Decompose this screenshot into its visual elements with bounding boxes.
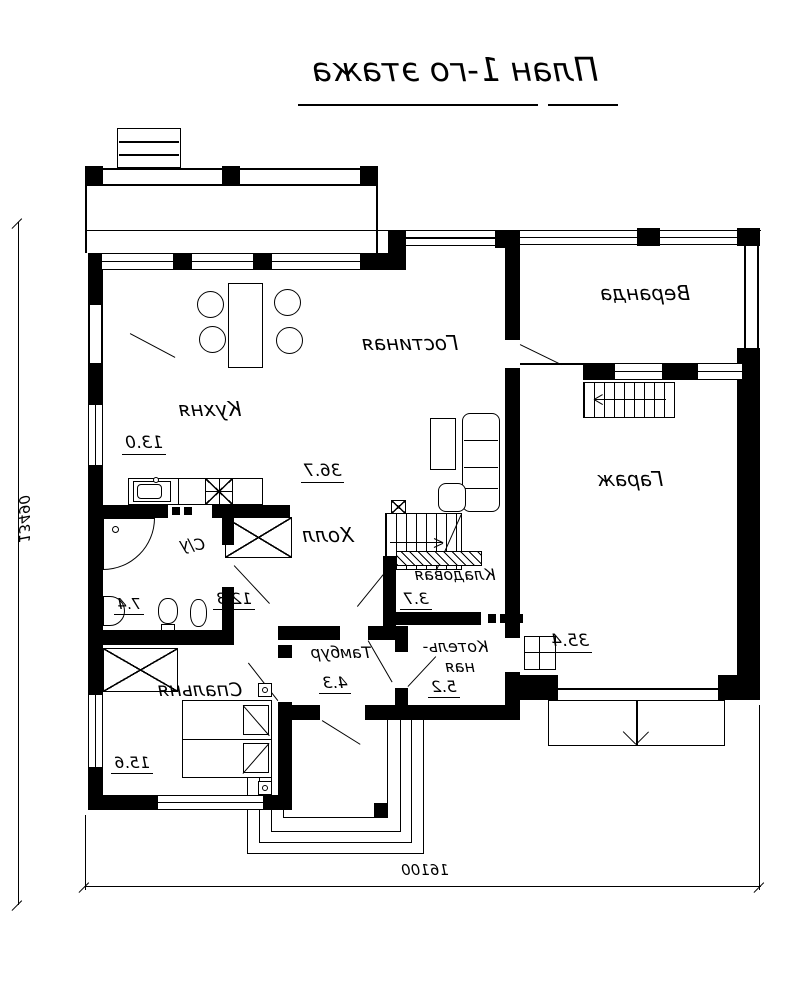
room-area-boiler: 5.2 (424, 678, 464, 696)
stove-cross-line (205, 491, 233, 492)
wall (505, 368, 520, 638)
window (660, 230, 737, 245)
door-swing-line (130, 333, 176, 358)
wall (505, 248, 520, 340)
window (406, 230, 495, 246)
terrace-side-line (376, 185, 378, 253)
wall (253, 253, 272, 270)
room-area-kitchen: 13.0 (118, 434, 170, 453)
wall (278, 626, 340, 640)
sofa (462, 413, 500, 512)
door-swing-line (357, 574, 384, 607)
wall-dash (515, 614, 523, 623)
dimension-width-label: 16100 (380, 862, 470, 879)
room-label-veranda: Веранда (580, 282, 710, 304)
lamp (262, 687, 268, 693)
wall (520, 675, 558, 700)
wall (495, 230, 520, 248)
sofa-seat (438, 483, 466, 512)
window (192, 253, 253, 270)
wall (103, 505, 168, 518)
wall (435, 705, 520, 720)
room-label-garage: Гараж (570, 468, 690, 490)
wardrobe (225, 517, 292, 558)
room-area-garage: 35.4 (540, 632, 600, 651)
room-area-bathroom: 7.4 (108, 596, 150, 613)
window (88, 695, 103, 767)
window (272, 253, 360, 270)
wall (88, 270, 103, 305)
window (102, 253, 173, 270)
stair-newel (391, 500, 406, 514)
wall (88, 465, 103, 695)
wall (88, 630, 234, 645)
terrace-column (222, 166, 240, 186)
door-jamb-line (88, 305, 90, 363)
title-underline-2 (548, 104, 618, 106)
room-label-boiler-line1: Котель- (408, 638, 503, 656)
wall (292, 705, 320, 720)
wall (263, 795, 292, 810)
room-label-pantry: Кладовая (405, 566, 505, 584)
wall (222, 518, 234, 545)
floor-plan: План 1-го этажа 13490 16100 (0, 0, 800, 1000)
room-label-boiler-line2: ная (430, 658, 490, 676)
garage-door-line (558, 688, 718, 690)
room-label-living: Гостиная (320, 332, 500, 354)
wall (173, 253, 192, 270)
wall (742, 363, 760, 380)
dim-extension-line (759, 705, 760, 890)
room-area-vestibule: 4.3 (316, 674, 354, 692)
lamp (262, 785, 268, 791)
dimension-line-bottom (85, 886, 761, 887)
pantry-shelves (396, 551, 482, 566)
title-underline (298, 104, 538, 106)
door-jamb-line (101, 305, 103, 363)
wall (662, 363, 698, 380)
dining-table (228, 283, 263, 368)
wall-dash (488, 614, 496, 623)
veranda-column (737, 228, 760, 246)
shower (103, 518, 155, 570)
wall (365, 705, 437, 720)
wall (718, 675, 760, 700)
chair (276, 327, 303, 354)
room-label-kitchen: Кухня (160, 398, 260, 420)
wall (396, 612, 481, 625)
bed-divider (182, 739, 272, 740)
stairs-arrow-line (390, 542, 442, 543)
room-label-vestibule: Тамбур (304, 644, 378, 662)
terrace-side-line (85, 185, 87, 253)
wall (88, 253, 102, 270)
faucet (153, 477, 159, 483)
wall (737, 368, 760, 700)
kitchen-sink-basin (137, 484, 162, 499)
room-area-hall: 12.3 (206, 590, 262, 608)
wall (368, 626, 408, 640)
window (615, 363, 662, 380)
dim-tick (12, 900, 23, 911)
water-heater (190, 599, 207, 627)
wall-corner (388, 230, 406, 270)
sofa-cushion-line (464, 488, 498, 489)
page-title: План 1-го этажа (290, 52, 620, 88)
room-area-pantry: 3.7 (396, 590, 436, 608)
dim-extension-line (85, 815, 86, 890)
wall (88, 363, 103, 405)
wall (278, 645, 292, 658)
window (698, 363, 742, 380)
window (520, 230, 637, 245)
shower-drain (112, 526, 119, 533)
wall (583, 363, 615, 380)
chair (274, 289, 301, 316)
wall (278, 702, 292, 795)
counter-divider (178, 478, 179, 505)
garage-apron-divider (636, 700, 638, 746)
room-area-living: 36.7 (295, 462, 350, 481)
terrace-column (360, 166, 378, 186)
dim-tick (12, 218, 23, 229)
window (158, 795, 263, 810)
dimension-height-label: 13490 (15, 479, 33, 559)
dim-tick (79, 882, 90, 893)
wall (88, 795, 158, 810)
room-label-hall: Холл (283, 524, 373, 546)
sofa-cushion-line (464, 467, 498, 468)
stairs-arrow-line (594, 399, 666, 400)
room-label-bedroom: Спальня (140, 680, 260, 701)
porch-step (247, 720, 424, 854)
room-area-bedroom: 15.6 (106, 754, 158, 772)
veranda-column (637, 228, 660, 246)
chair (199, 326, 226, 353)
toilet (158, 598, 178, 624)
terrace-column (85, 166, 103, 186)
coffee-table (430, 418, 456, 470)
chimney-flue-line (119, 154, 179, 156)
door-threshold (172, 507, 180, 515)
window (88, 405, 103, 465)
wall (383, 556, 396, 628)
room-label-bathroom: С/у (162, 536, 222, 554)
wall-dash (500, 614, 511, 623)
veranda-floor-line (520, 363, 583, 365)
chimney-flue-line (119, 141, 179, 143)
door-threshold (184, 507, 192, 515)
porch-column (374, 803, 388, 817)
sofa-cushion-line (464, 440, 498, 441)
chair (197, 291, 224, 318)
dimension-line-left (18, 222, 19, 905)
chimney (117, 128, 181, 168)
